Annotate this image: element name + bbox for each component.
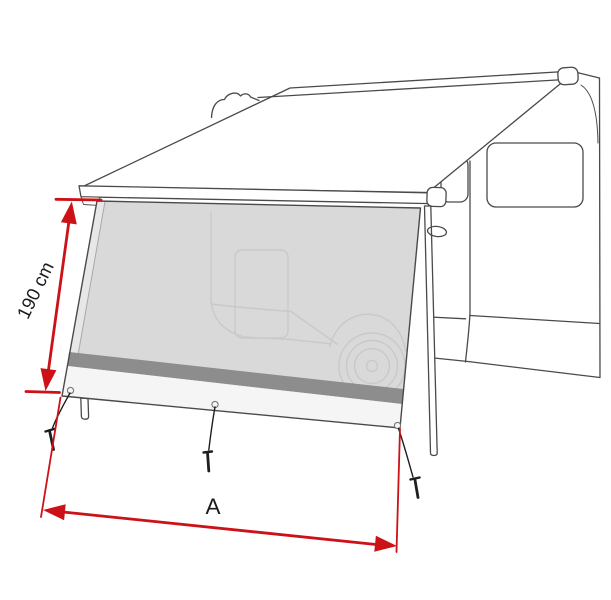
roof-line bbox=[577, 73, 600, 79]
peg-right bbox=[415, 479, 418, 498]
height-arrow-up bbox=[61, 202, 77, 225]
awning-roof bbox=[83, 67, 579, 193]
cord-middle bbox=[209, 407, 215, 450]
height-arrow-down bbox=[41, 368, 57, 391]
width-arrow-left bbox=[43, 504, 66, 520]
right-leg-pole bbox=[425, 206, 438, 456]
awning-panel-diagram: 190 cm A bbox=[0, 0, 611, 600]
width-dimension-label: A bbox=[205, 494, 220, 519]
body-seam-line bbox=[430, 316, 600, 324]
height-dimension-line bbox=[48, 221, 69, 372]
rear-edge-line bbox=[600, 78, 601, 378]
front-bar-right-cap bbox=[427, 187, 447, 207]
width-extension-left bbox=[41, 398, 61, 518]
height-dimension-label: 190 cm bbox=[12, 258, 57, 322]
peg-middle bbox=[208, 453, 209, 472]
awning-case-end-cap bbox=[557, 67, 578, 85]
side-window bbox=[487, 143, 583, 207]
rear-corner-curve bbox=[581, 85, 598, 143]
width-extension-right bbox=[397, 429, 401, 552]
diagram-canvas: 190 cm A bbox=[0, 0, 611, 600]
left-leg-pole bbox=[81, 398, 89, 419]
front-panel bbox=[62, 201, 421, 429]
skirt-line bbox=[429, 358, 600, 378]
grommet-right bbox=[394, 422, 400, 428]
awning-fabric bbox=[83, 72, 566, 193]
height-tick-bottom bbox=[26, 392, 60, 393]
height-tick-top bbox=[56, 199, 101, 200]
width-arrow-right bbox=[374, 536, 397, 552]
